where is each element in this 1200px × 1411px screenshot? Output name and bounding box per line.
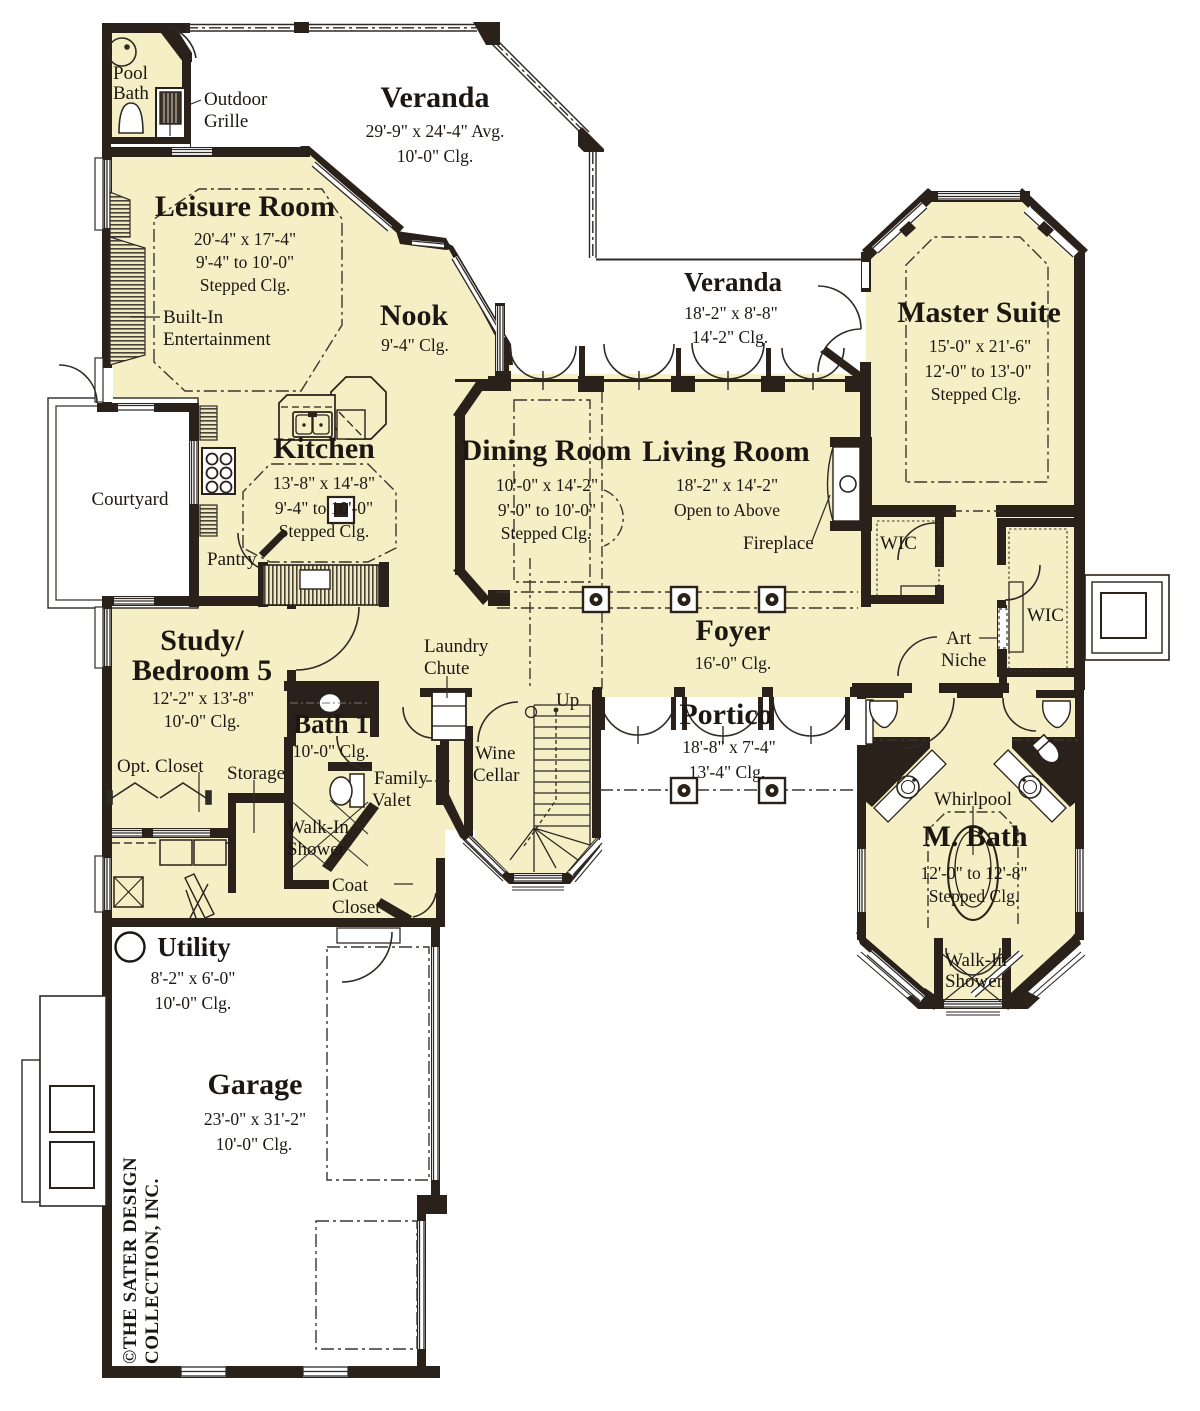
svg-text:Up: Up [556, 690, 579, 711]
svg-text:Courtyard: Courtyard [91, 489, 169, 510]
svg-text:Bath 1: Bath 1 [293, 709, 369, 739]
svg-text:Master Suite: Master Suite [897, 296, 1061, 329]
svg-text:10'-0" x 14'-2": 10'-0" x 14'-2" [496, 475, 598, 495]
svg-text:Walk-In: Walk-In [287, 817, 349, 838]
svg-text:Stepped Clg.: Stepped Clg. [501, 523, 591, 543]
svg-text:Whirlpool: Whirlpool [934, 789, 1012, 810]
svg-text:14'-2" Clg.: 14'-2" Clg. [692, 327, 768, 347]
svg-text:Chute: Chute [424, 658, 469, 679]
svg-text:10'-0" Clg.: 10'-0" Clg. [164, 711, 240, 731]
svg-text:Kitchen: Kitchen [273, 432, 375, 465]
svg-text:Stepped Clg.: Stepped Clg. [279, 521, 369, 541]
svg-text:Veranda: Veranda [684, 267, 783, 297]
svg-text:12'-0" to 12'-8": 12'-0" to 12'-8" [920, 863, 1027, 883]
svg-text:9'-0" to 10'-0": 9'-0" to 10'-0" [498, 500, 596, 520]
svg-text:Laundry: Laundry [424, 636, 489, 657]
svg-text:©THE SATER DESIGN: ©THE SATER DESIGN [120, 1157, 141, 1364]
svg-text:12'-0" to 13'-0": 12'-0" to 13'-0" [924, 361, 1031, 381]
svg-text:Pool: Pool [113, 63, 148, 84]
svg-text:Garage: Garage [208, 1068, 303, 1101]
svg-text:Art: Art [946, 628, 972, 649]
svg-text:10'-0" Clg.: 10'-0" Clg. [397, 146, 473, 166]
svg-text:13'-8" x 14'-8": 13'-8" x 14'-8" [273, 473, 375, 493]
svg-text:Niche: Niche [941, 650, 986, 671]
svg-text:9'-4" to 10'-0": 9'-4" to 10'-0" [275, 498, 373, 518]
svg-text:12'-2" x 13'-8": 12'-2" x 13'-8" [152, 688, 254, 708]
svg-text:18'-8" x 7'-4": 18'-8" x 7'-4" [682, 737, 776, 757]
svg-text:Bath: Bath [113, 83, 149, 104]
svg-text:9'-4" to 10'-0": 9'-4" to 10'-0" [196, 252, 294, 272]
svg-text:Valet: Valet [372, 790, 412, 811]
svg-text:Nook: Nook [380, 299, 449, 332]
svg-text:Foyer: Foyer [696, 614, 771, 647]
svg-text:15'-0" x 21'-6": 15'-0" x 21'-6" [929, 336, 1031, 356]
svg-text:Stepped Clg.: Stepped Clg. [931, 384, 1021, 404]
svg-text:9'-4" Clg.: 9'-4" Clg. [381, 335, 449, 355]
svg-text:Fireplace: Fireplace [743, 533, 814, 554]
svg-text:Outdoor: Outdoor [204, 89, 268, 110]
svg-text:16'-0" Clg.: 16'-0" Clg. [695, 653, 771, 673]
svg-text:Cellar: Cellar [473, 765, 520, 786]
svg-text:Shower: Shower [945, 971, 1004, 992]
svg-text:18'-2" x 8'-8": 18'-2" x 8'-8" [684, 303, 778, 323]
svg-text:Family: Family [374, 768, 428, 789]
svg-text:WIC: WIC [880, 533, 917, 554]
svg-text:Leisure Room: Leisure Room [155, 190, 335, 223]
svg-text:Pantry: Pantry [207, 549, 257, 570]
svg-text:23'-0" x 31'-2": 23'-0" x 31'-2" [204, 1109, 306, 1129]
svg-text:Utility: Utility [157, 932, 231, 962]
svg-text:Portico: Portico [679, 698, 772, 731]
svg-text:Open to Above: Open to Above [674, 500, 780, 520]
svg-text:18'-2" x 14'-2": 18'-2" x 14'-2" [676, 475, 778, 495]
svg-text:Closet: Closet [332, 897, 381, 918]
svg-text:Veranda: Veranda [381, 81, 490, 114]
svg-text:Grille: Grille [204, 111, 248, 132]
svg-text:Study/: Study/ [160, 624, 244, 657]
svg-text:Living Room: Living Room [642, 435, 810, 468]
svg-text:Storage: Storage [227, 763, 285, 784]
svg-text:M. Bath: M. Bath [923, 820, 1028, 853]
svg-text:Coat: Coat [332, 875, 369, 896]
svg-text:Built-In: Built-In [163, 307, 224, 328]
svg-text:Walk-In: Walk-In [945, 950, 1007, 971]
svg-text:10'-0" Clg.: 10'-0" Clg. [216, 1134, 292, 1154]
svg-text:Stepped Clg.: Stepped Clg. [929, 886, 1019, 906]
svg-text:Entertainment: Entertainment [163, 329, 271, 350]
svg-text:COLLECTION, INC.: COLLECTION, INC. [142, 1178, 163, 1364]
svg-text:Bedroom 5: Bedroom 5 [132, 654, 272, 687]
svg-text:Opt. Closet: Opt. Closet [117, 756, 204, 777]
svg-text:13'-4" Clg.: 13'-4" Clg. [689, 762, 765, 782]
svg-text:Shower: Shower [287, 839, 346, 860]
svg-text:10'-0" Clg.: 10'-0" Clg. [293, 741, 369, 761]
svg-text:20'-4" x 17'-4": 20'-4" x 17'-4" [194, 229, 296, 249]
svg-text:29'-9" x 24'-4" Avg.: 29'-9" x 24'-4" Avg. [366, 121, 505, 141]
svg-text:WIC: WIC [1027, 605, 1064, 626]
svg-text:Dining Room: Dining Room [461, 434, 632, 467]
svg-text:Stepped Clg.: Stepped Clg. [200, 275, 290, 295]
svg-text:Wine: Wine [475, 743, 515, 764]
svg-text:8'-2" x 6'-0": 8'-2" x 6'-0" [151, 968, 236, 988]
svg-text:10'-0" Clg.: 10'-0" Clg. [155, 993, 231, 1013]
